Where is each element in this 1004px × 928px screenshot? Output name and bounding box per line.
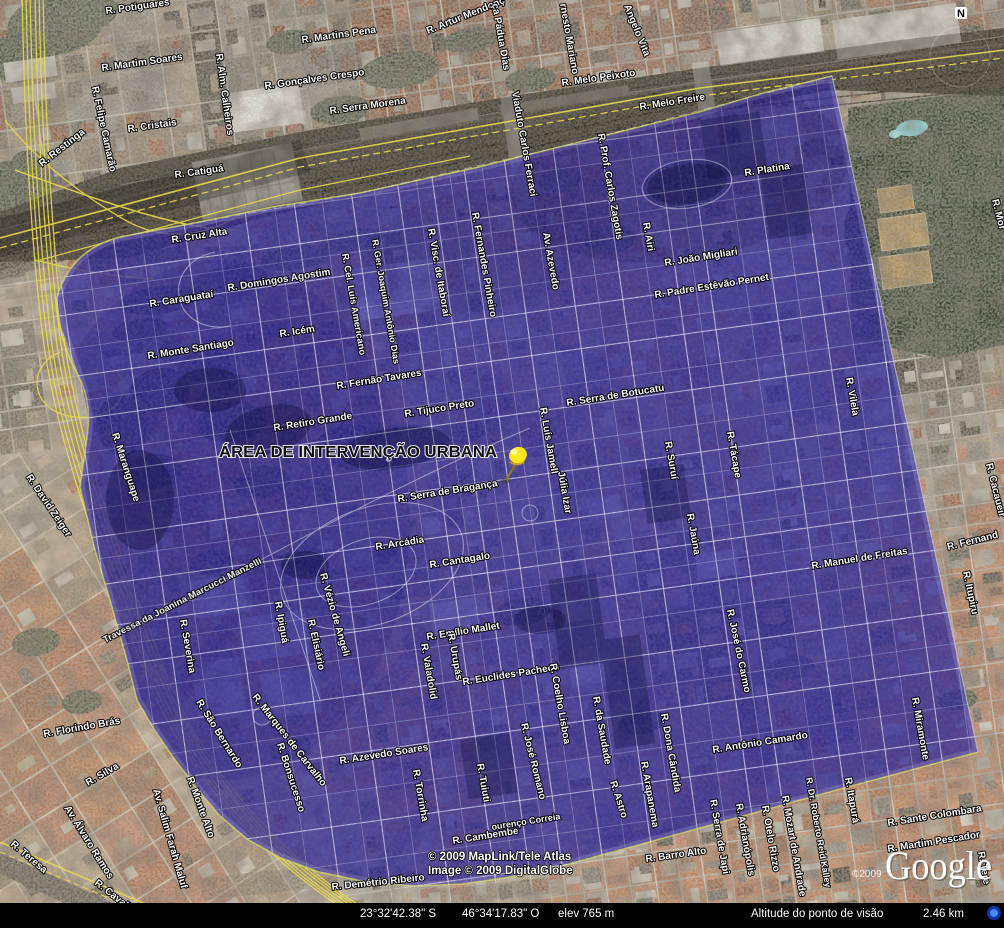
svg-text:©2009: ©2009 bbox=[852, 869, 882, 880]
svg-text:© 2009 MapLink/Tele Atlas: © 2009 MapLink/Tele Atlas bbox=[428, 851, 571, 863]
svg-text:N: N bbox=[957, 8, 965, 20]
svg-text:ÁREA DE INTERVENÇÃO URBANA: ÁREA DE INTERVENÇÃO URBANA bbox=[219, 443, 497, 461]
svg-text:46°34'17.83" O: 46°34'17.83" O bbox=[462, 908, 539, 920]
svg-text:23°32'42.38" S: 23°32'42.38" S bbox=[360, 908, 436, 920]
svg-text:elev 765 m: elev 765 m bbox=[558, 908, 614, 920]
svg-text:Altitude do ponto de visão: Altitude do ponto de visão bbox=[751, 908, 883, 920]
svg-text:2.46 km: 2.46 km bbox=[923, 908, 964, 920]
svg-text:Google: Google bbox=[885, 843, 992, 888]
svg-text:Image © 2009 DigitalGlobe: Image © 2009 DigitalGlobe bbox=[428, 865, 573, 877]
